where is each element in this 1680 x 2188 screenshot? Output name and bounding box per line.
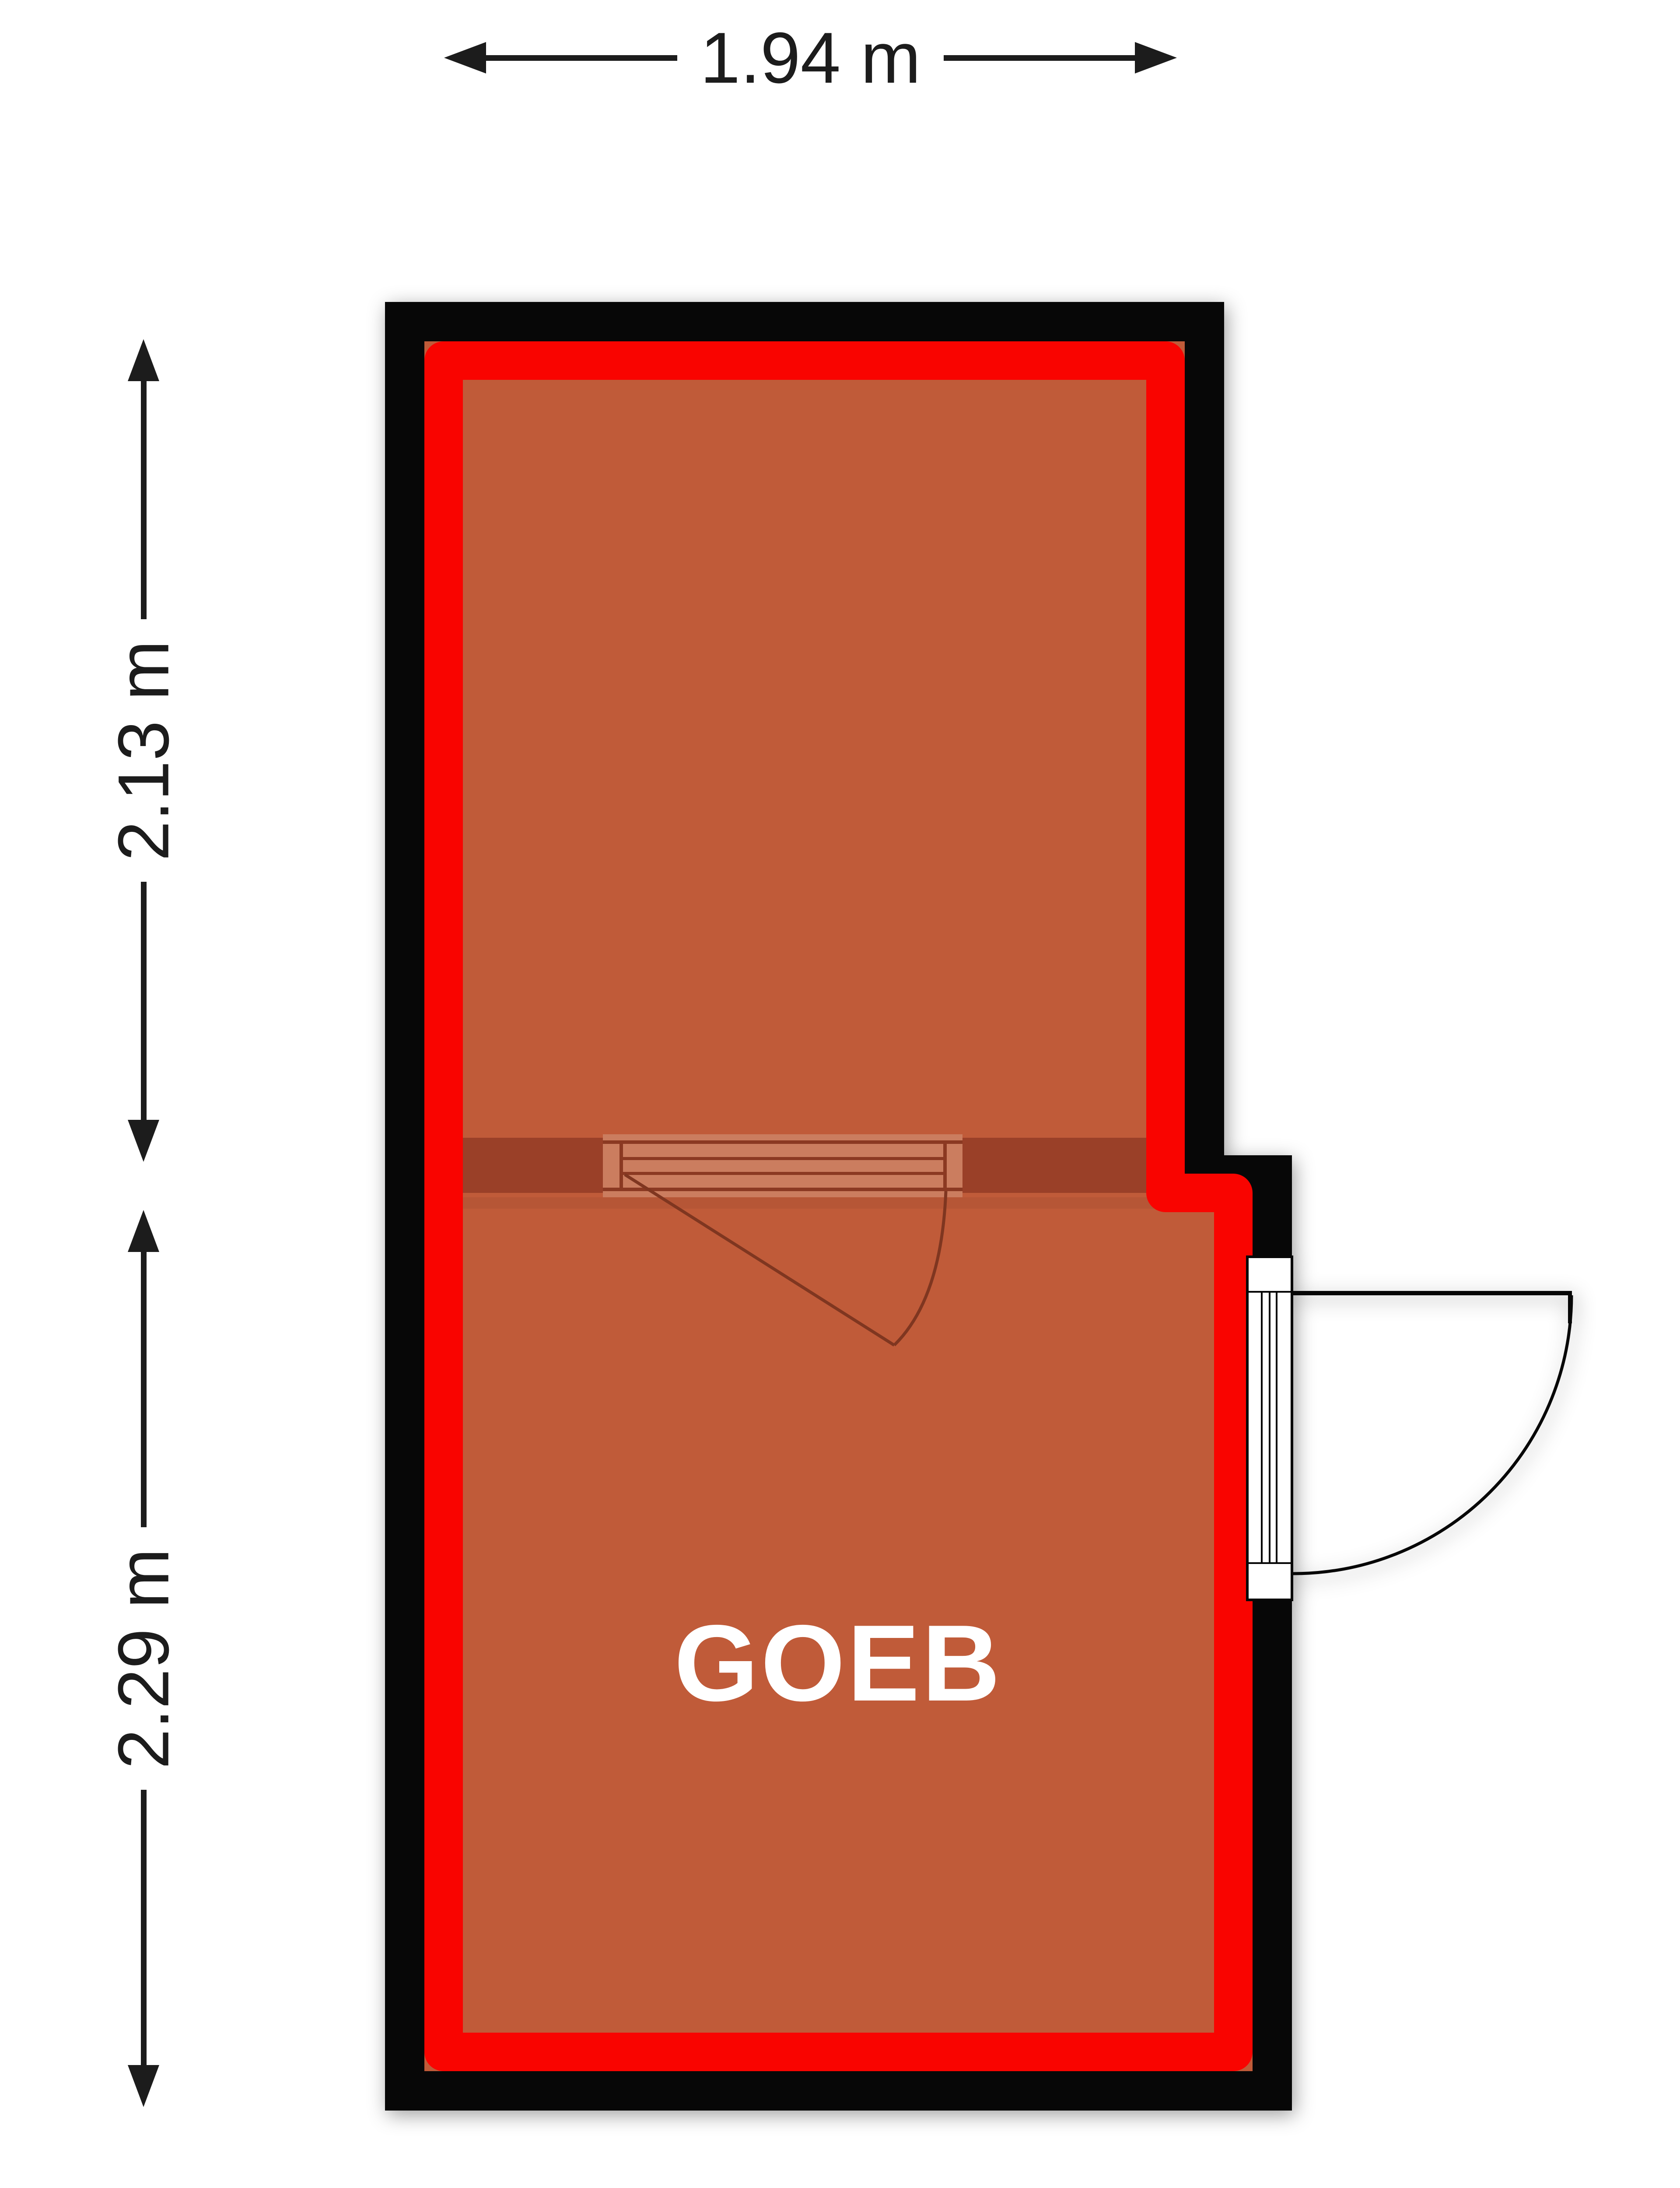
dimension-label-left-upper: 2.13 m <box>108 640 180 861</box>
wall-top <box>385 302 1224 341</box>
dimension-left-upper: 2.13 m <box>103 339 184 1162</box>
wall-left <box>385 302 424 2111</box>
sill-jamb-left <box>619 1140 623 1191</box>
wall-bottom <box>385 2071 1292 2111</box>
dimension-line <box>486 55 677 61</box>
arrow-left-icon <box>444 42 486 74</box>
dimension-line <box>141 1252 147 1527</box>
sill-rail-2 <box>623 1172 943 1175</box>
dimension-top: 1.94 m <box>444 18 1177 98</box>
dimension-label-wrap: 2.29 m <box>103 1527 184 1790</box>
dimension-left-lower: 2.29 m <box>103 1210 184 2107</box>
wall-right-upper <box>1185 302 1224 1193</box>
sill-jamb-right <box>943 1140 947 1191</box>
page-background: GOEB 1.94 m 2.12 m 2.13 m 2.29 m <box>0 0 1680 2188</box>
dimension-label-left-lower: 2.29 m <box>108 1548 180 1769</box>
arrow-up-icon <box>128 1210 159 1252</box>
arrow-down-icon <box>128 2065 159 2107</box>
exterior-door-swing-arc <box>1293 1295 1571 1574</box>
divider-shadow <box>444 1197 1165 1209</box>
dimension-line <box>944 55 1135 61</box>
dimension-line <box>141 381 147 619</box>
dimension-label-wrap: 2.13 m <box>103 619 184 882</box>
sill-line-top <box>603 1140 962 1144</box>
floorplan: GOEB <box>0 0 1680 2188</box>
arrow-down-icon <box>128 1120 159 1162</box>
room-label: GOEB <box>554 1593 1123 1733</box>
sill-rail-1 <box>623 1157 943 1160</box>
floorplan-drawing <box>0 0 1680 2188</box>
arrow-right-icon <box>1135 42 1177 74</box>
dimension-line <box>141 1790 147 2065</box>
dimension-line <box>141 882 147 1120</box>
arrow-up-icon <box>128 339 159 381</box>
sill-line-bottom <box>603 1188 962 1191</box>
dimension-label-top: 1.94 m <box>677 22 943 94</box>
exterior-door-leaf <box>1292 1291 1572 1295</box>
